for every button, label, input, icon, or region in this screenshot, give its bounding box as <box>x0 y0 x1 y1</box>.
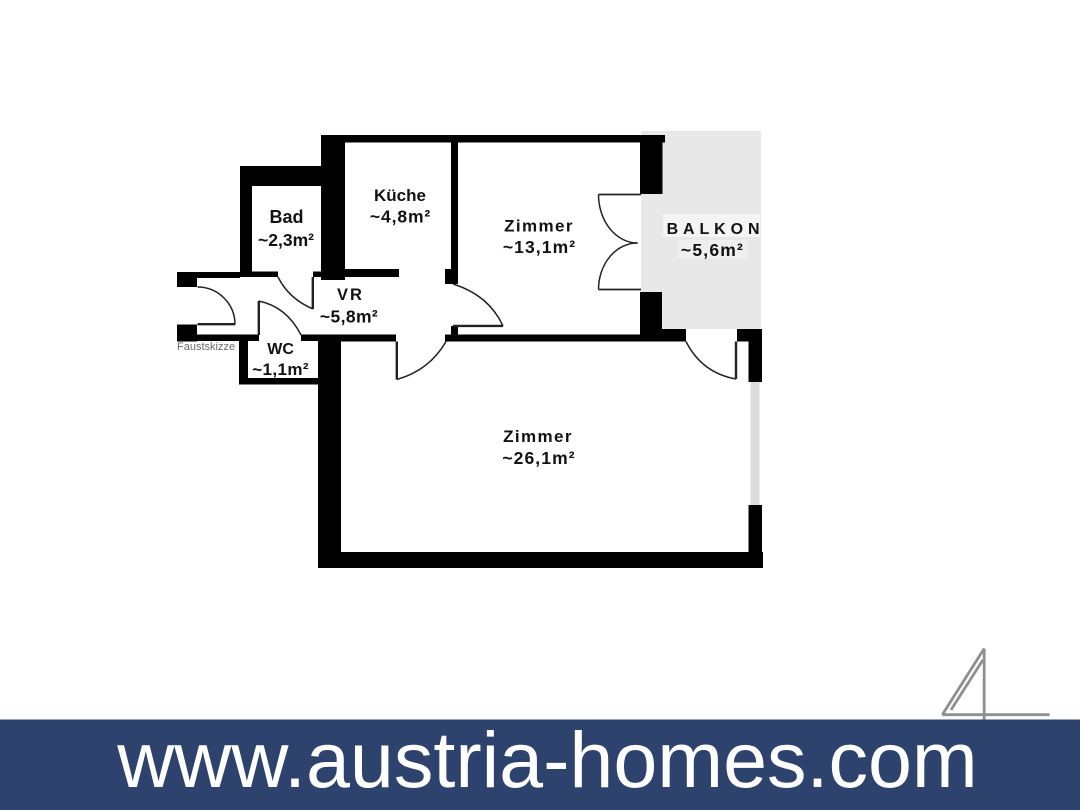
svg-text:WC: WC <box>267 341 294 358</box>
svg-text:BALKON: BALKON <box>667 221 765 238</box>
svg-text:~26,1m²: ~26,1m² <box>502 448 575 468</box>
svg-text:~13,1m²: ~13,1m² <box>503 237 576 257</box>
svg-text:Küche: Küche <box>374 186 426 205</box>
svg-text:~1,1m²: ~1,1m² <box>252 360 309 379</box>
svg-text:Faustskizze: Faustskizze <box>177 341 235 353</box>
svg-text:~5,6m²: ~5,6m² <box>681 240 744 260</box>
svg-text:www.austria-homes.com: www.austria-homes.com <box>116 715 977 804</box>
svg-text:Bad: Bad <box>269 207 303 227</box>
svg-text:Zimmer: Zimmer <box>503 427 573 446</box>
svg-text:VR: VR <box>337 286 364 304</box>
svg-text:Zimmer: Zimmer <box>504 217 574 236</box>
svg-text:~4,8m²: ~4,8m² <box>370 207 431 227</box>
svg-text:~2,3m²: ~2,3m² <box>258 230 314 250</box>
svg-text:~5,8m²: ~5,8m² <box>320 307 378 327</box>
